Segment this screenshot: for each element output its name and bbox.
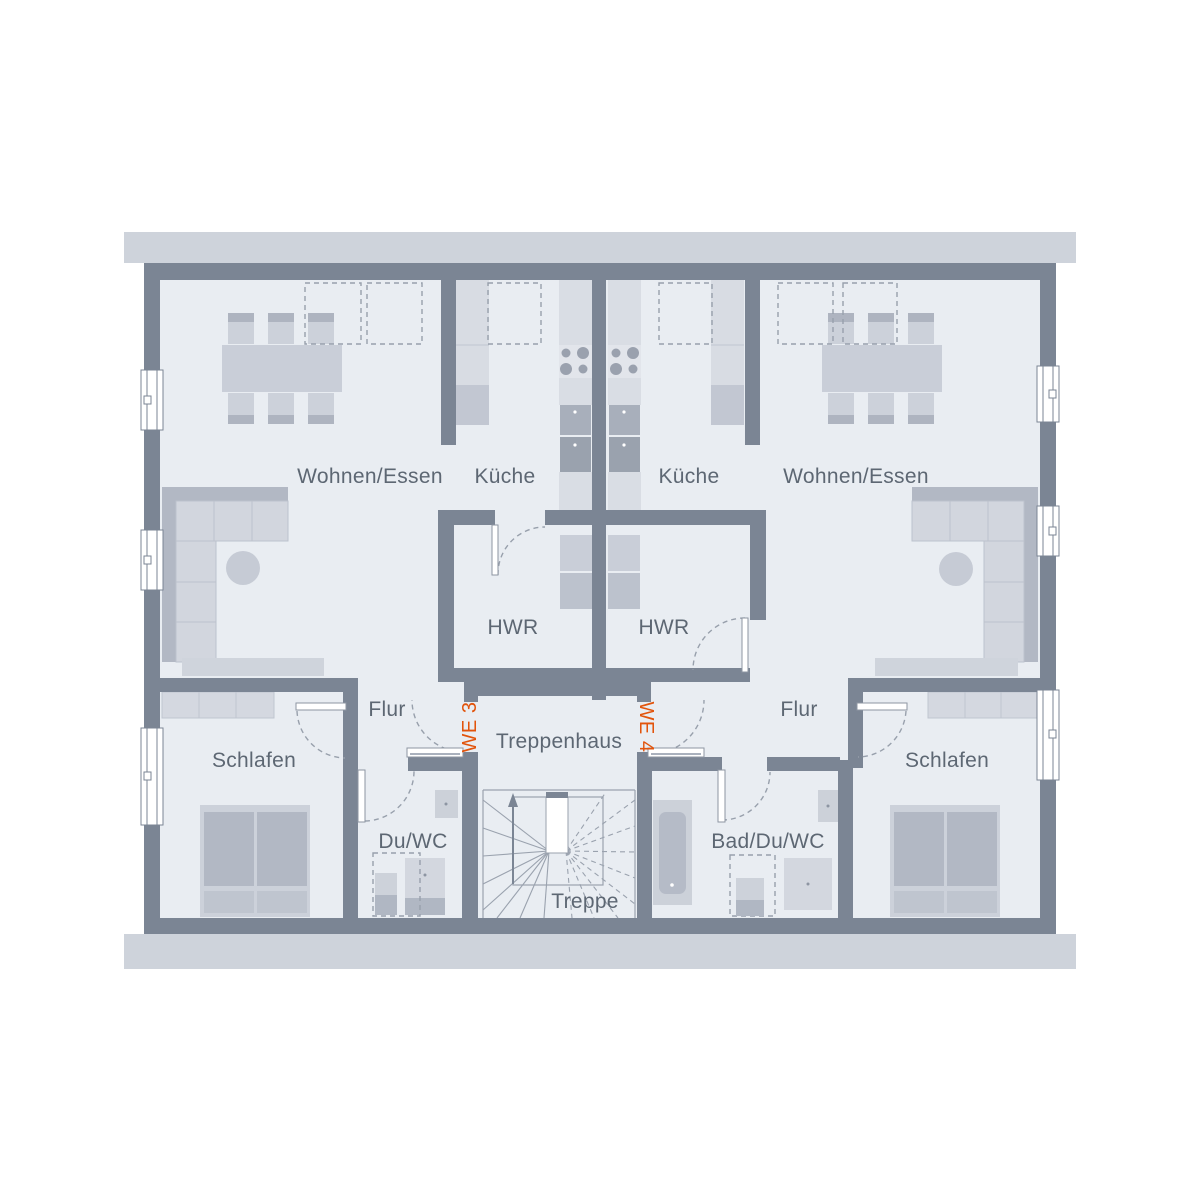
- wall-stairwell-left: [462, 752, 478, 918]
- room-label-treppenhaus: Treppenhaus: [496, 730, 622, 753]
- room-label-kueche-left: Küche: [474, 465, 535, 488]
- wall-exterior-top: [144, 263, 1056, 280]
- door-leaf-bedroom-left: [296, 703, 346, 710]
- window-left-3: [141, 728, 163, 825]
- roof-band-bottom: [124, 934, 1076, 969]
- stair-newel: [546, 797, 568, 853]
- window-left-1: [141, 370, 163, 430]
- dining-set-right: [822, 313, 942, 424]
- room-label-flur-right: Flur: [780, 698, 817, 721]
- room-label-flur-left: Flur: [368, 698, 405, 721]
- door-leaf-duwc: [358, 770, 365, 822]
- coffee-table: [939, 552, 973, 586]
- door-leaf-bedroom-right: [857, 703, 907, 710]
- dining-table: [822, 345, 942, 392]
- room-label-schlafen-left: Schlafen: [212, 749, 296, 772]
- door-leaf-hwr-right: [742, 618, 748, 672]
- room-label-duwc: Du/WC: [378, 830, 447, 853]
- wall-bedroom-left: [160, 678, 347, 692]
- wall-exterior-bottom: [144, 918, 1056, 934]
- window-left-2: [141, 530, 163, 590]
- wall-party-center: [592, 280, 606, 700]
- wall-bedroom-right: [853, 678, 1040, 692]
- room-label-wohnen-left: Wohnen/Essen: [297, 465, 443, 488]
- room-label-schlafen-right: Schlafen: [905, 749, 989, 772]
- room-label-kueche-right: Küche: [658, 465, 719, 488]
- wall-kitchen-divider-right: [745, 280, 760, 445]
- sliding-door-we3: [407, 748, 463, 757]
- room-label-bad-du-wc: Bad/Du/WC: [711, 830, 825, 853]
- wall-kitchen-divider-left: [441, 280, 456, 445]
- unit-label-we4: WE 4: [635, 702, 657, 753]
- unit-label-we3: WE 3: [459, 702, 481, 753]
- bed-left: [200, 805, 310, 917]
- bed-right: [890, 805, 1000, 917]
- wall-stairwell-right: [637, 752, 652, 918]
- coffee-table: [226, 551, 260, 585]
- wall-exterior-left: [144, 263, 160, 934]
- floor-plan-canvas: Wohnen/Essen Küche Küche Wohnen/Essen HW…: [0, 0, 1200, 1200]
- room-label-hwr-left: HWR: [487, 616, 538, 639]
- dining-set-left: [222, 313, 342, 424]
- floor-plan-page: Wohnen/Essen Küche Küche Wohnen/Essen HW…: [0, 0, 1200, 1200]
- door-leaf-hwr-left: [492, 525, 498, 575]
- room-label-wohnen-right: Wohnen/Essen: [783, 465, 929, 488]
- wall-exterior-right: [1040, 263, 1056, 934]
- door-leaf-bath: [718, 770, 725, 822]
- roof-band-top: [124, 232, 1076, 263]
- room-label-hwr-right: HWR: [638, 616, 689, 639]
- window-right-3: [1037, 690, 1059, 780]
- dining-table: [222, 345, 342, 392]
- window-right-2: [1037, 506, 1059, 556]
- room-label-treppe: Treppe: [551, 890, 619, 913]
- wall-stairwell-top: [464, 682, 651, 696]
- window-right-1: [1037, 366, 1059, 422]
